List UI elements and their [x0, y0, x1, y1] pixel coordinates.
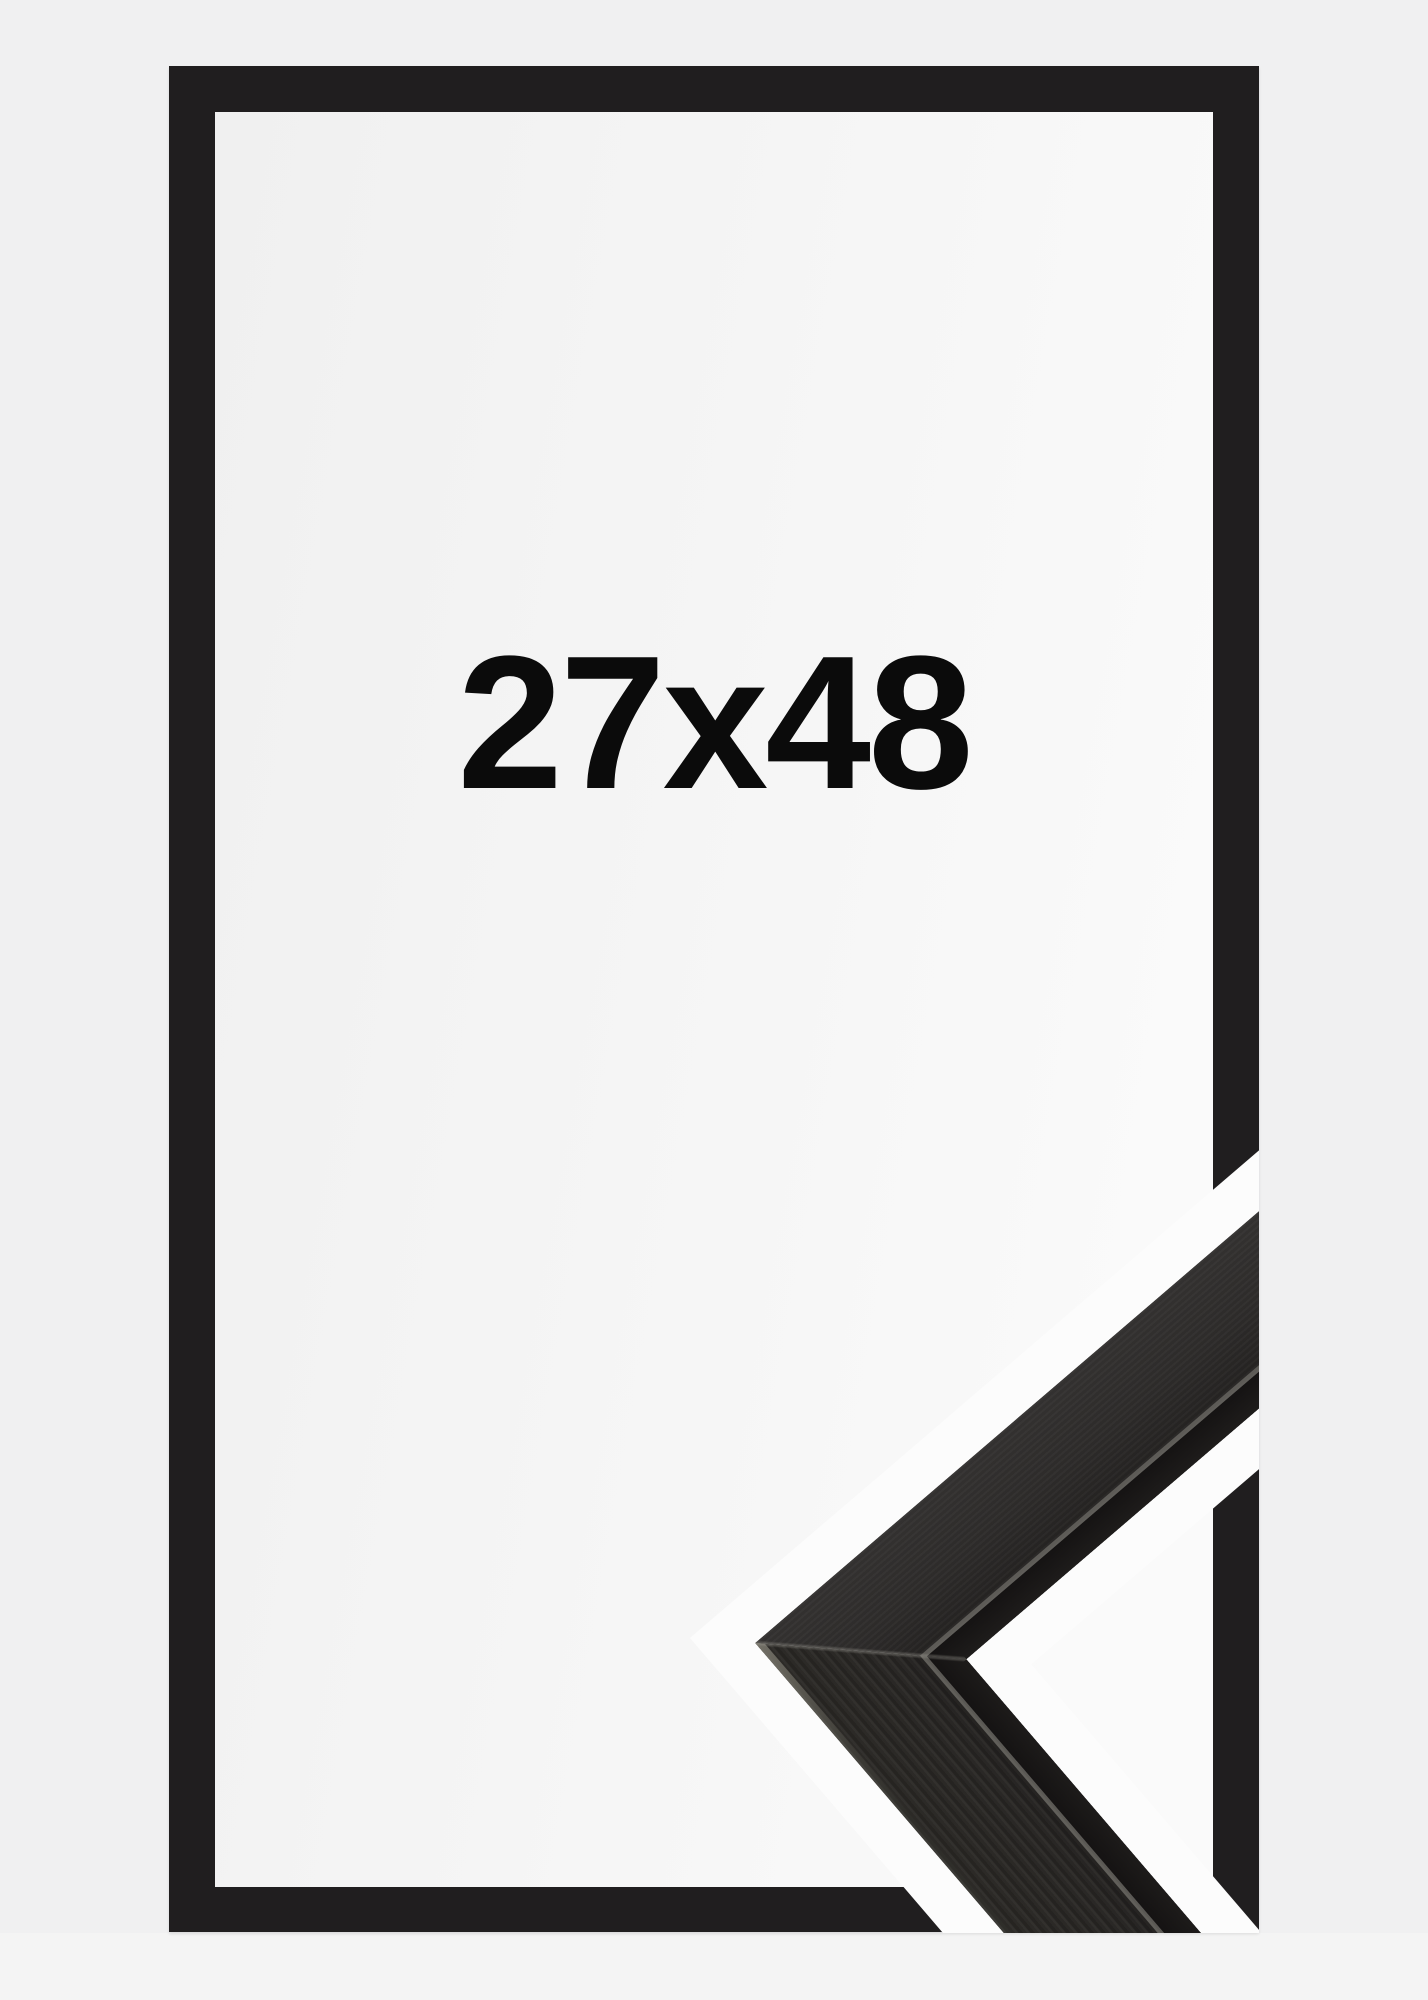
sample-clip-region [0, 0, 1259, 1933]
product-photo-area: 27x48 [0, 0, 1428, 1933]
product-image: { "frame_preview": { "size_label": "27x4… [0, 0, 1428, 2000]
